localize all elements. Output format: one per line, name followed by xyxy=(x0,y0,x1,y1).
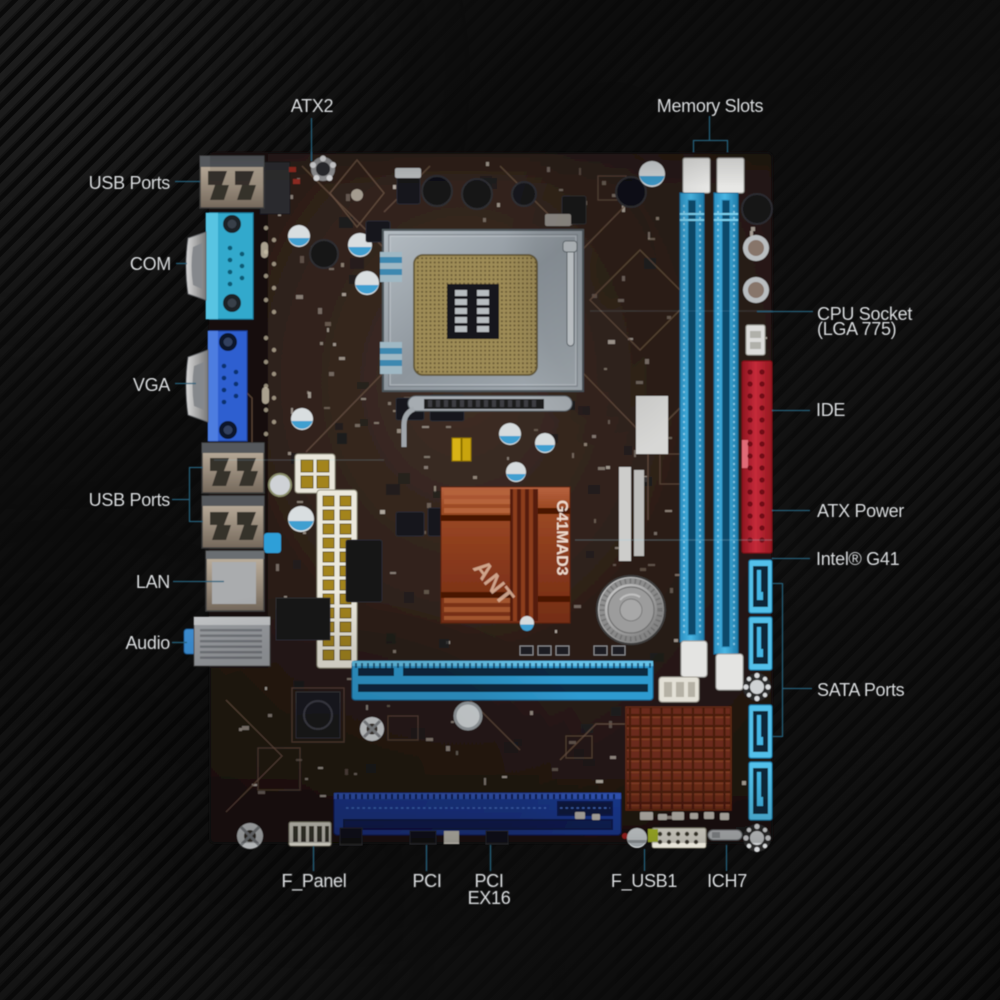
svg-text:ICH7: ICH7 xyxy=(707,871,747,891)
svg-text:Memory Slots: Memory Slots xyxy=(657,96,764,116)
svg-text:USB Ports: USB Ports xyxy=(89,173,171,193)
svg-text:(LGA 775): (LGA 775) xyxy=(817,319,896,339)
svg-text:PCI: PCI xyxy=(412,871,441,891)
svg-text:USB Ports: USB Ports xyxy=(89,490,171,510)
svg-text:ATX2: ATX2 xyxy=(291,96,334,116)
svg-text:F_Panel: F_Panel xyxy=(282,871,347,892)
svg-text:VGA: VGA xyxy=(133,375,170,395)
svg-text:EX16: EX16 xyxy=(468,888,511,908)
svg-text:COM: COM xyxy=(130,254,171,274)
svg-text:Audio: Audio xyxy=(125,633,170,653)
svg-text:Intel® G41: Intel® G41 xyxy=(816,549,900,569)
svg-text:SATA Ports: SATA Ports xyxy=(817,680,905,700)
svg-text:G41MAD3: G41MAD3 xyxy=(553,500,570,576)
svg-text:LAN: LAN xyxy=(136,572,170,592)
svg-text:ATX Power: ATX Power xyxy=(817,501,904,521)
svg-text:IDE: IDE xyxy=(816,400,845,420)
svg-text:F_USB1: F_USB1 xyxy=(611,871,678,892)
